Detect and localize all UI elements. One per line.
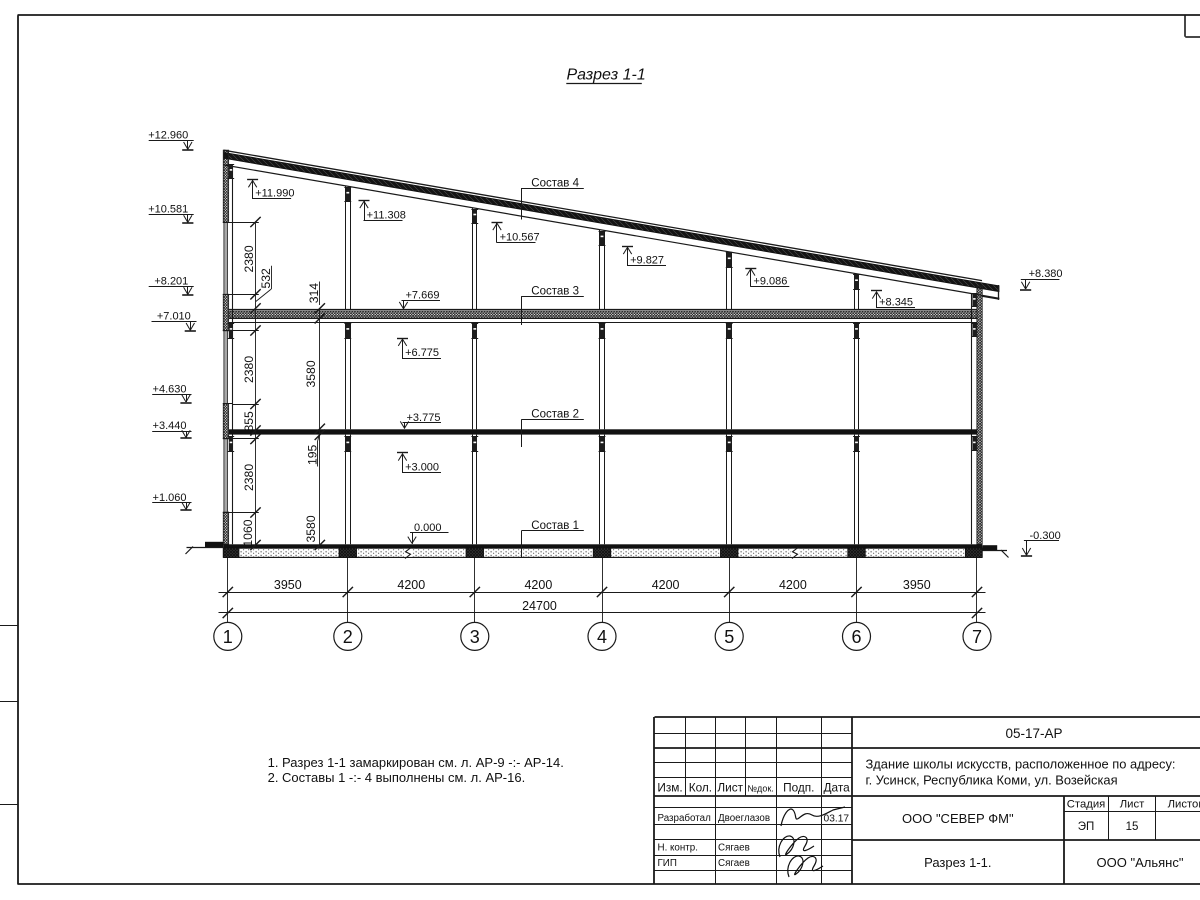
- svg-text:+3.000: +3.000: [405, 462, 439, 474]
- svg-text:+7.010: +7.010: [157, 310, 191, 322]
- svg-text:3: 3: [470, 627, 480, 647]
- svg-text:ЭП: ЭП: [1078, 821, 1095, 833]
- svg-text:Лист: Лист: [717, 780, 743, 794]
- svg-text:г. Усинск, Республика Коми, ул: г. Усинск, Республика Коми, ул. Возейска…: [866, 773, 1118, 788]
- svg-text:Разрез 1-1: Разрез 1-1: [567, 67, 646, 84]
- svg-text:855: 855: [242, 411, 256, 432]
- svg-text:Кол.: Кол.: [689, 780, 712, 794]
- svg-text:1. Разрез 1-1 замаркирован см.: 1. Разрез 1-1 замаркирован см. л. АР-9 -…: [268, 755, 564, 770]
- svg-text:+6.775: +6.775: [405, 347, 439, 359]
- svg-text:3580: 3580: [304, 515, 318, 542]
- svg-text:7: 7: [972, 627, 982, 647]
- svg-text:4200: 4200: [652, 578, 680, 592]
- svg-text:Дата: Дата: [824, 780, 851, 794]
- svg-text:4200: 4200: [779, 578, 807, 592]
- svg-text:2380: 2380: [242, 464, 256, 491]
- svg-text:Лист: Лист: [1120, 799, 1145, 811]
- svg-text:532: 532: [259, 268, 273, 289]
- svg-text:Сягаев: Сягаев: [718, 843, 750, 854]
- svg-text:ООО "СЕВЕР ФМ": ООО "СЕВЕР ФМ": [902, 811, 1014, 826]
- svg-text:Изм.: Изм.: [657, 780, 682, 794]
- svg-text:3580: 3580: [304, 360, 318, 387]
- svg-text:Состав 3: Состав 3: [531, 285, 579, 297]
- svg-text:4200: 4200: [397, 578, 425, 592]
- svg-text:Листов: Листов: [1168, 799, 1200, 811]
- svg-text:4200: 4200: [524, 578, 552, 592]
- svg-text:+4.630: +4.630: [153, 383, 187, 395]
- svg-text:Разрез 1-1.: Разрез 1-1.: [924, 855, 991, 870]
- svg-text:Состав 4: Состав 4: [531, 177, 579, 189]
- svg-text:03.17: 03.17: [824, 813, 850, 824]
- svg-text:1060: 1060: [241, 519, 255, 546]
- svg-text:2. Составы 1 -:- 4 выполнены с: 2. Составы 1 -:- 4 выполнены см. л. АР-1…: [268, 770, 526, 785]
- svg-text:15: 15: [1126, 821, 1139, 833]
- svg-text:ГИП: ГИП: [658, 858, 677, 869]
- svg-text:+10.567: +10.567: [500, 232, 540, 244]
- svg-text:+3.440: +3.440: [153, 420, 187, 432]
- svg-text:05-17-АР: 05-17-АР: [1005, 726, 1062, 741]
- svg-text:2: 2: [343, 627, 353, 647]
- svg-text:Двоеглазов: Двоеглазов: [718, 813, 770, 824]
- svg-text:Разработал: Разработал: [658, 813, 712, 824]
- svg-text:+9.086: +9.086: [753, 276, 787, 288]
- svg-text:Здание школы искусств, располо: Здание школы искусств, расположенное по …: [866, 757, 1176, 772]
- svg-text:+9.827: +9.827: [630, 255, 664, 267]
- svg-text:+8.201: +8.201: [154, 275, 188, 287]
- svg-text:2380: 2380: [242, 356, 256, 383]
- svg-text:4: 4: [597, 627, 607, 647]
- svg-text:Состав 2: Состав 2: [531, 409, 579, 421]
- svg-text:Н. контр.: Н. контр.: [658, 843, 698, 854]
- svg-text:6: 6: [851, 627, 861, 647]
- svg-text:3950: 3950: [274, 578, 302, 592]
- svg-text:+10.581: +10.581: [148, 203, 188, 215]
- svg-text:№док.: №док.: [747, 783, 773, 793]
- svg-text:Сягаев: Сягаев: [718, 858, 750, 869]
- svg-text:+11.990: +11.990: [255, 188, 294, 200]
- svg-text:+8.380: +8.380: [1029, 268, 1063, 280]
- svg-text:Подп.: Подп.: [783, 780, 814, 794]
- svg-text:+7.669: +7.669: [406, 289, 440, 301]
- svg-text:314: 314: [307, 283, 321, 304]
- svg-text:+8.345: +8.345: [879, 297, 913, 309]
- svg-text:+11.308: +11.308: [367, 209, 406, 221]
- svg-text:3950: 3950: [903, 578, 931, 592]
- svg-text:5: 5: [724, 627, 734, 647]
- svg-text:2380: 2380: [242, 245, 256, 272]
- svg-text:Стадия: Стадия: [1067, 799, 1106, 811]
- svg-text:24700: 24700: [522, 599, 557, 613]
- svg-text:+12.960: +12.960: [148, 130, 188, 142]
- svg-text:ООО "Альянс": ООО "Альянс": [1097, 855, 1184, 870]
- svg-text:1: 1: [223, 627, 233, 647]
